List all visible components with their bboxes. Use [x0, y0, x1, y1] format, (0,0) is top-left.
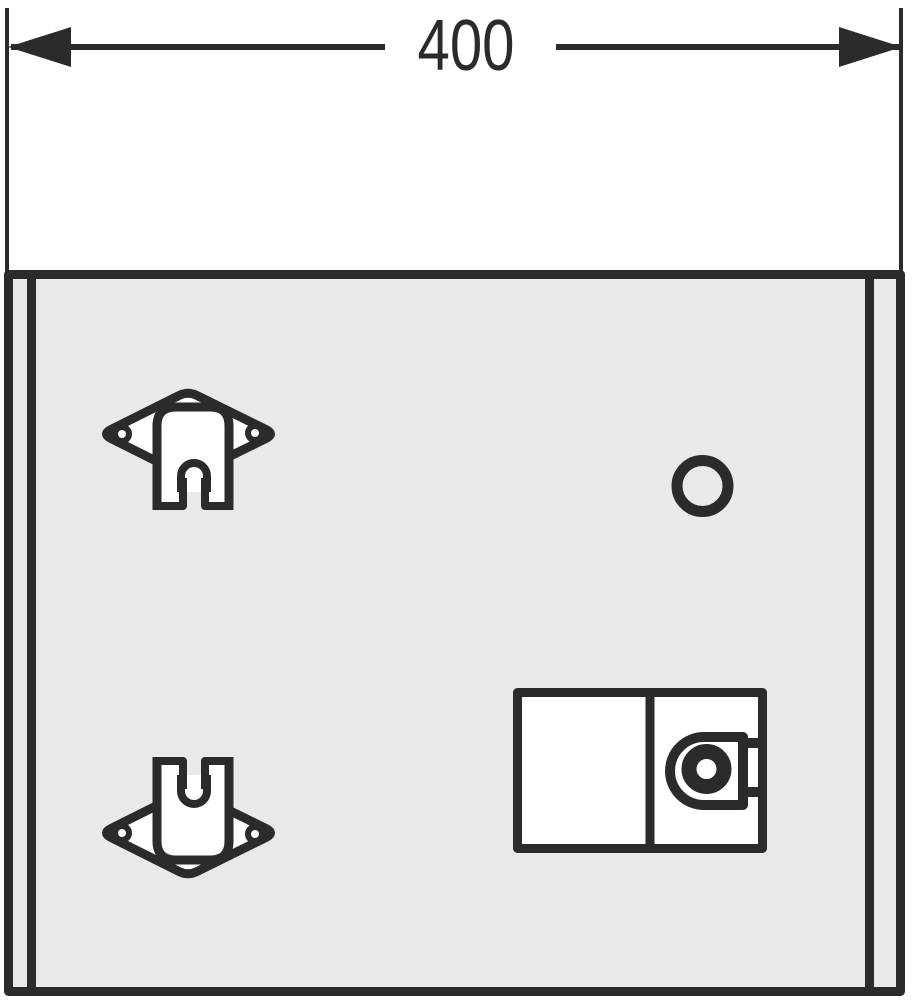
- drawing-page: 400: [0, 0, 913, 1000]
- cabinet-front-panel: [9, 274, 901, 992]
- arrowhead-left-icon: [8, 27, 71, 67]
- lock-cylinder: [689, 752, 724, 787]
- width-dimension: 400: [7, 6, 902, 272]
- panel-outline: [9, 275, 901, 992]
- dimension-label: 400: [418, 6, 515, 86]
- lock-unit: [518, 692, 764, 849]
- installation-drawing: 400: [0, 0, 913, 1000]
- arrowhead-right-icon: [839, 27, 902, 67]
